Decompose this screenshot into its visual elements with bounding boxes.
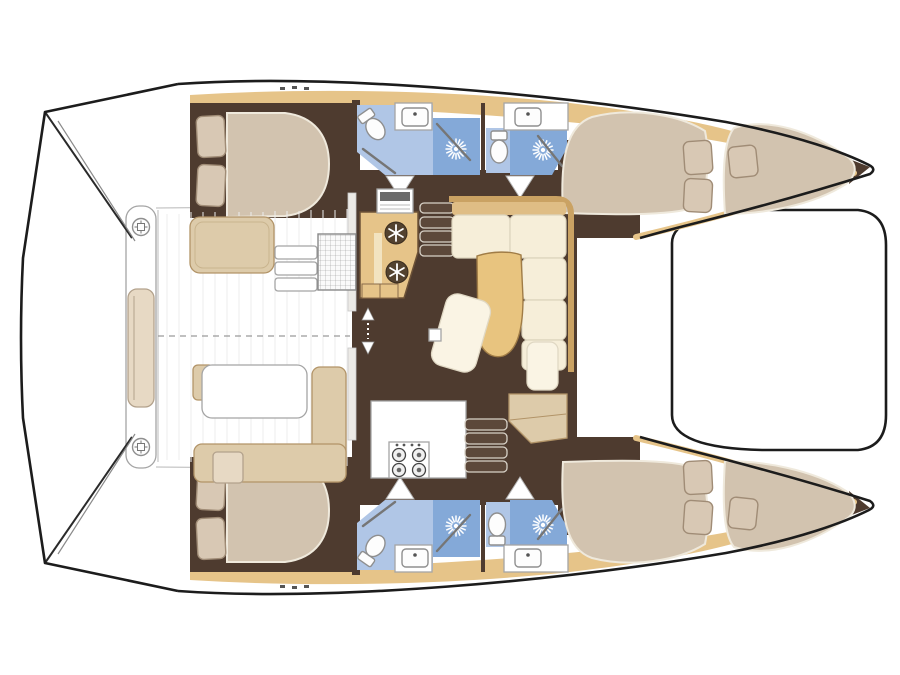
sink-icon bbox=[402, 549, 428, 567]
port-forward-cabin bbox=[562, 112, 713, 214]
sofa-back-cushion bbox=[452, 202, 566, 215]
sofa-end-cushion bbox=[527, 342, 558, 390]
cockpit-table bbox=[202, 365, 307, 418]
sofa-seat bbox=[522, 258, 566, 300]
pillow bbox=[728, 145, 759, 179]
sofa-seat bbox=[510, 215, 566, 258]
pillow bbox=[683, 500, 713, 535]
drink-table-icon bbox=[133, 219, 150, 236]
sunburst-shower-icon bbox=[446, 139, 466, 159]
double-bed bbox=[227, 113, 329, 217]
starboard-forward-cabin bbox=[562, 460, 713, 562]
table-leg-base bbox=[429, 329, 441, 341]
sofa-seat bbox=[522, 300, 566, 340]
port-aft-cabin bbox=[196, 113, 329, 217]
transom-bench bbox=[126, 206, 156, 468]
deck-grate-pattern bbox=[318, 234, 356, 290]
pillow bbox=[683, 140, 713, 175]
port-forepeak-berth bbox=[724, 124, 855, 214]
toilet-icon bbox=[489, 513, 506, 545]
boarding-steps bbox=[275, 246, 317, 291]
floor-plan-canvas bbox=[0, 0, 900, 675]
sink-basin bbox=[380, 192, 410, 201]
pillow bbox=[727, 497, 758, 531]
pillow bbox=[683, 178, 713, 212]
pillow bbox=[683, 460, 713, 494]
drink-table-icon bbox=[133, 439, 150, 456]
cockpit-aft-port-seat bbox=[190, 217, 274, 273]
pillow bbox=[196, 164, 226, 206]
transom-bench-cushion bbox=[128, 289, 154, 407]
pillow bbox=[196, 115, 226, 157]
catamaran-floor-plan bbox=[0, 0, 900, 675]
sink-icon bbox=[515, 549, 541, 567]
sink-icon bbox=[515, 108, 541, 126]
toilet-icon bbox=[491, 131, 508, 163]
starboard-forepeak-berth bbox=[724, 461, 855, 551]
counter-trim bbox=[374, 233, 382, 289]
sunburst-shower-icon bbox=[446, 516, 466, 536]
pillow bbox=[196, 517, 226, 559]
bench-cushion bbox=[213, 452, 243, 483]
forward-galley bbox=[371, 401, 466, 478]
sink-icon bbox=[402, 108, 428, 126]
trampoline-platform bbox=[672, 210, 886, 450]
